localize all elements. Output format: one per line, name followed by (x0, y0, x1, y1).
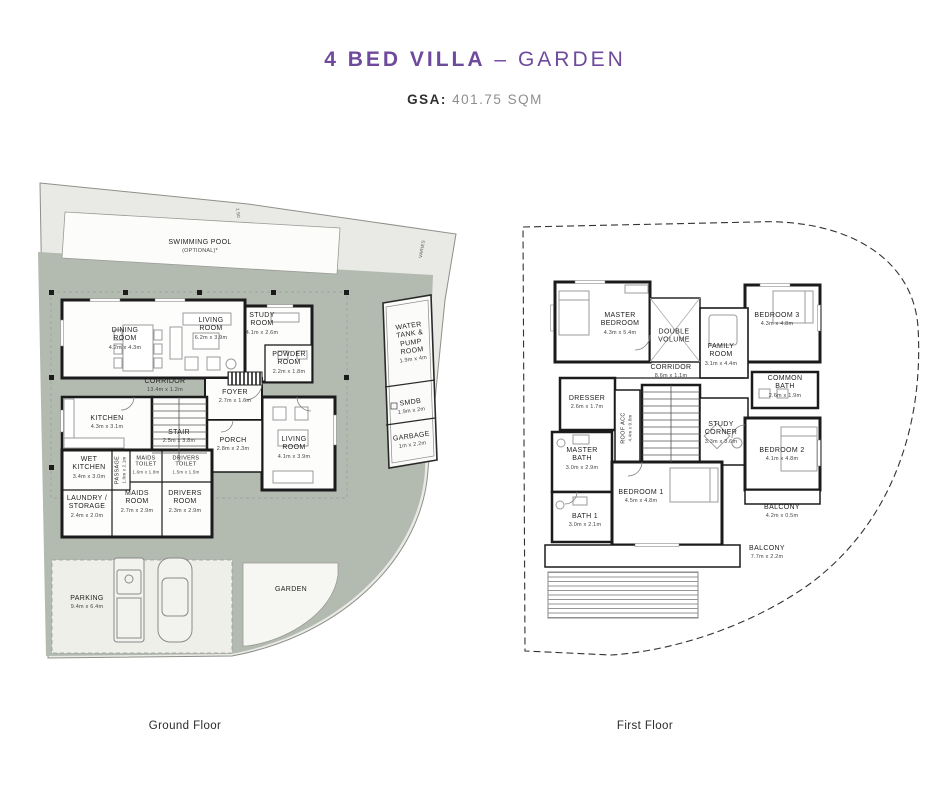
first-floor-caption: First Floor (580, 720, 710, 732)
page-title-variant: GARDEN (518, 48, 626, 71)
page-title-main: 4 BED VILLA (324, 48, 485, 71)
ground-floor-caption: Ground Floor (120, 720, 250, 732)
pergola-louvers (548, 572, 698, 618)
gsa-line: GSA: 401.75 SQM (0, 92, 950, 107)
page-title-separator: – (494, 48, 509, 71)
utility-strip (383, 295, 437, 468)
ground-floor-drawing (35, 175, 465, 675)
page-title: 4 BED VILLA – GARDEN (0, 48, 950, 72)
corridor-cabinet-hatch (228, 372, 262, 385)
gsa-value: 401.75 SQM (452, 92, 543, 107)
first-floor-plan: MASTER BEDROOM4.3m x 5.4m DOUBLE VOLUME … (515, 215, 935, 665)
gsa-label: GSA: (407, 92, 447, 107)
ground-floor-plan: SWIMMING POOL (OPTIONAL)* 1.50 VARIES DI… (35, 175, 465, 675)
first-floor-drawing (515, 215, 935, 665)
